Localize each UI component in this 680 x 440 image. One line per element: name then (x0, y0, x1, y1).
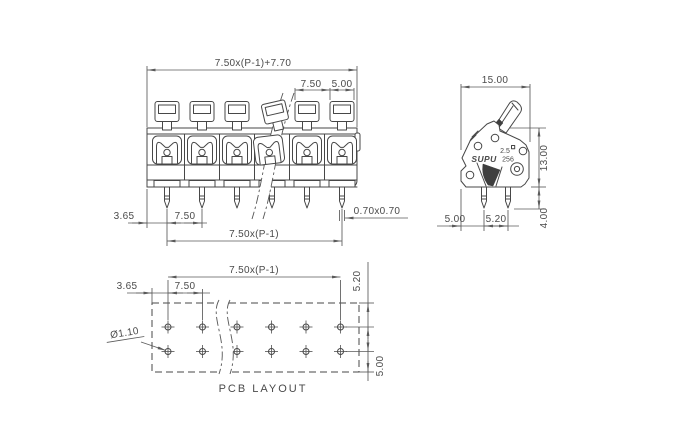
pcb-hole (334, 345, 347, 358)
pcb-hole (162, 345, 175, 358)
dim-pin-offset: 3.65 (114, 211, 135, 222)
lever (225, 102, 249, 131)
solder-pin (340, 187, 345, 208)
dim-pin-pitch: 7.50 (175, 211, 196, 222)
dim-row-pitch: 5.20 (486, 214, 507, 225)
wire-clamp (293, 136, 322, 164)
dim-hole-pitch: 7.50 (175, 281, 196, 292)
foot (294, 181, 320, 188)
foot (329, 181, 355, 188)
technical-drawing-page: 7.50x(P-1)+7.70 7.50 5.00 3.65 7.50 7.50… (0, 0, 680, 440)
wire-clamp (153, 136, 182, 164)
pcb-layout: 7.50x(P-1) 3.65 7.50 5.20 5.00 Ø1.10 PCB… (105, 262, 386, 395)
break-mask (216, 300, 233, 374)
lever (295, 102, 319, 131)
dim-pole-width: 5.00 (332, 79, 353, 90)
wire-clamp (223, 136, 252, 164)
terminal-block-drawing: 7.50x(P-1)+7.70 7.50 5.00 3.65 7.50 7.50… (0, 0, 680, 440)
pcb-hole (265, 345, 278, 358)
dim-row-edge: 5.00 (375, 356, 386, 377)
wire-clamp (328, 136, 357, 164)
solder-pin (235, 187, 240, 208)
pcb-layout-caption: PCB LAYOUT (219, 383, 308, 395)
dim-hole-diameter: Ø1.10 (110, 326, 140, 341)
pcb-hole (231, 321, 244, 334)
dim-edge-offset: 3.65 (117, 281, 138, 292)
lever (155, 102, 179, 131)
dim-pitch-top: 7.50 (301, 79, 322, 90)
solder-pin (482, 187, 487, 208)
pcb-hole (196, 321, 209, 334)
dim-front-to-pin: 5.00 (445, 214, 466, 225)
dim-height: 13.00 (539, 145, 550, 172)
foot (224, 181, 250, 188)
brand-logo: SUPU (471, 154, 497, 164)
dim-pin-length: 4.00 (539, 208, 550, 229)
marking-series: 256 (502, 157, 514, 164)
hole-diameter-callout: Ø1.10 (105, 325, 144, 342)
dim-hole-span: 7.50x(P-1) (229, 265, 279, 276)
dim-pin-section: 0.70x0.70 (354, 206, 401, 217)
dim-row-pitch: 5.20 (352, 271, 363, 292)
front-view: 7.50x(P-1)+7.70 7.50 5.00 3.65 7.50 7.50… (114, 58, 408, 246)
pcb-hole (196, 345, 209, 358)
pcb-hole (334, 321, 347, 334)
pcb-hole (162, 321, 175, 334)
foot (189, 181, 215, 188)
side-view: SUPU 2.5 256 15.00 13.00 4.00 5.00 5.20 (437, 75, 550, 231)
solder-pin (165, 187, 170, 208)
dim-pin-span: 7.50x(P-1) (229, 229, 279, 240)
wire-clamp-tilted (253, 134, 285, 165)
solder-pin (305, 187, 310, 208)
marking-wire-size: 2.5 (500, 148, 510, 155)
pcb-hole (300, 345, 313, 358)
pcb-outline (152, 303, 359, 372)
solder-pin (506, 187, 511, 208)
pcb-hole (300, 321, 313, 334)
solder-pin (200, 187, 205, 208)
dim-overall-width: 7.50x(P-1)+7.70 (215, 58, 292, 69)
dim-depth: 15.00 (482, 75, 509, 86)
foot (154, 181, 180, 188)
pcb-hole (265, 321, 278, 334)
lever (330, 102, 354, 131)
wire-clamp (188, 136, 217, 164)
lever (190, 102, 214, 131)
